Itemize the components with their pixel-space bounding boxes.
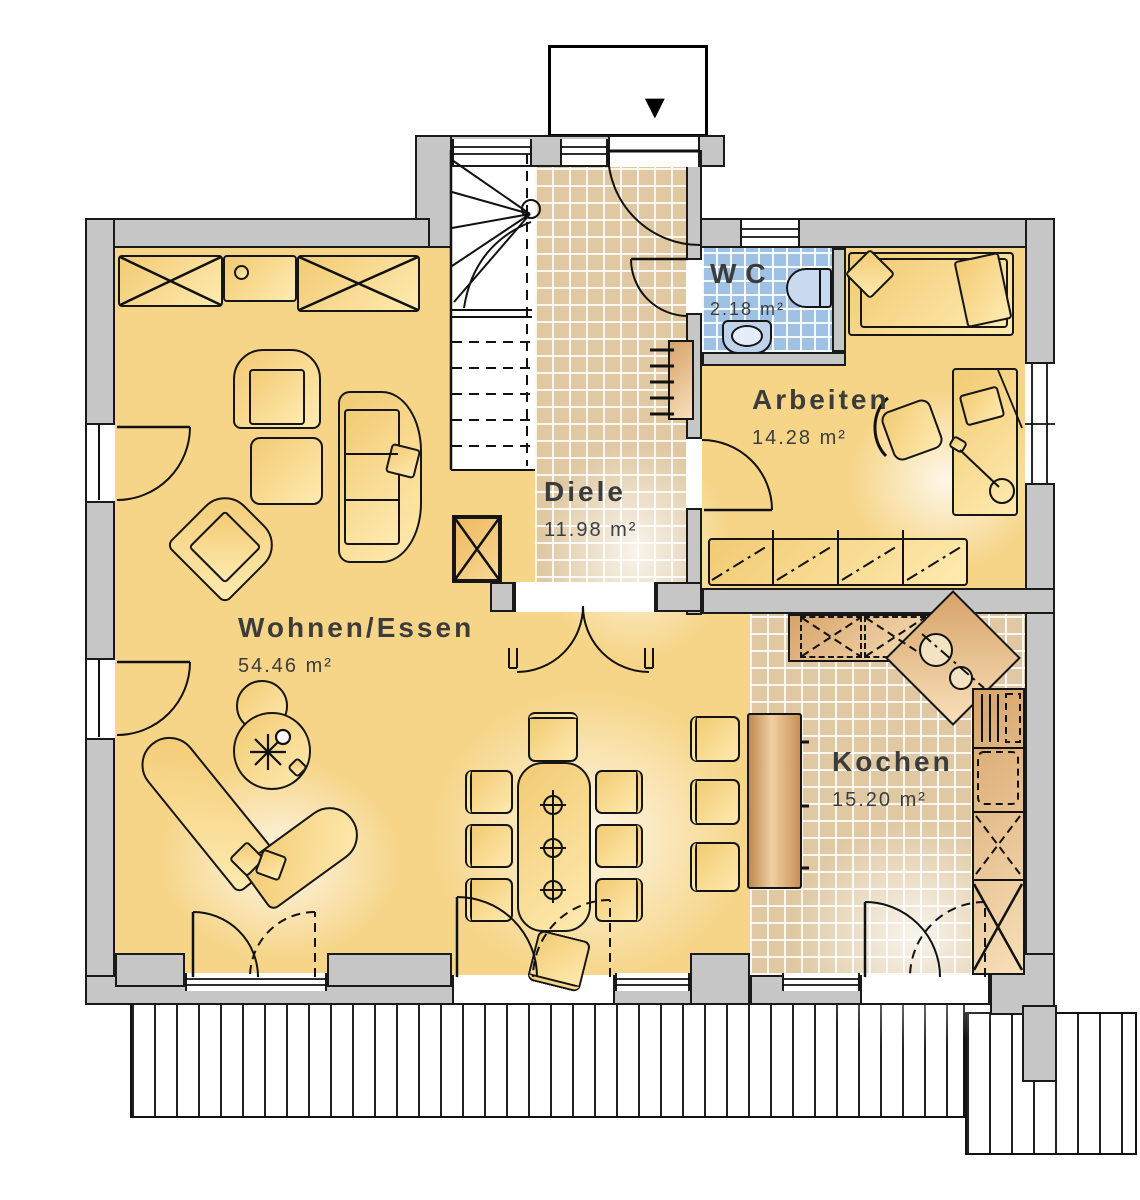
room-area: 15.20 m² [832,789,953,812]
sideboard-right [297,255,420,312]
door-left-1 [87,423,115,503]
hall-living-doorway [514,582,656,612]
wc-sink-basin [731,325,763,347]
wall-wc-south [702,352,846,366]
room-name: Diele [544,476,637,508]
door-left-2 [87,658,115,740]
room-area: 14.28 m² [752,427,890,450]
dining-chair [465,824,513,868]
kitchen-counter-right [972,688,1025,975]
sofa-three-seat-seat [344,409,400,545]
bar-stool [690,779,740,825]
entrance-doorway [608,137,700,167]
room-area: 54.46 m² [238,655,474,678]
window-hall [560,139,608,165]
wall-pier [327,953,452,987]
entrance-arrow-icon: ▼ [638,90,672,124]
radiator [668,340,694,420]
window-stairs [452,139,532,165]
window-kitchen [782,973,860,991]
vase-icon [234,265,249,280]
room-name: Arbeiten [752,384,890,416]
bar-stool [690,842,740,892]
terrace-door-kitchen [860,975,990,1003]
bar-counter [747,713,802,889]
room-area: 11.98 m² [544,519,637,542]
wall-right [1025,218,1055,1015]
dining-chair [528,712,578,762]
room-label-diele: Diele 11.98 m² [544,476,637,542]
room-name: Wohnen/Essen [238,612,474,644]
wall-hall-south-stub-b [656,582,702,612]
dining-chair [595,878,643,922]
room-name: Kochen [832,746,953,778]
hall-floor [535,150,686,612]
dining-chair [465,878,513,922]
toilet [786,268,832,308]
window-wc [740,220,800,246]
wall-pier [690,953,750,1005]
side-table [233,712,311,790]
dining-table [517,762,591,932]
room-name: WC [710,258,785,290]
sideboard-left [118,255,223,307]
wall-top-left [85,218,430,248]
wall-pier [1022,1005,1057,1082]
window-door-study [1025,362,1055,485]
dining-chair [465,770,513,814]
armchair-1-seat [249,369,305,425]
wall-study-south [702,588,1055,614]
wall-hall-south-stub-a [490,582,514,612]
window-bottom-1 [185,973,327,991]
wc-doorway [686,258,702,315]
chimney [452,515,502,583]
window-bottom-2 [615,973,690,991]
kitchen-upper-cabinet [800,616,862,658]
wall-left [85,218,115,1005]
room-label-kochen: Kochen 15.20 m² [832,746,953,812]
wall-wc-east [832,248,846,352]
bar-stool [690,716,740,762]
room-label-arbeiten: Arbeiten 14.28 m² [752,384,890,450]
room-label-wc: WC 2.18 m² [710,258,785,320]
room-label-wohnen: Wohnen/Essen 54.46 m² [238,612,474,678]
entrance-porch [548,45,708,137]
room-area: 2.18 m² [710,299,785,320]
wall-pier [115,953,185,987]
floor-plan: ▼ [0,0,1140,1200]
dining-chair [595,770,643,814]
coffee-table [250,437,323,505]
staircase-floor [452,150,535,470]
sideboard-shelf [223,255,297,302]
cabinet-row [708,538,968,586]
dining-chair [595,824,643,868]
study-doorway [686,437,702,510]
